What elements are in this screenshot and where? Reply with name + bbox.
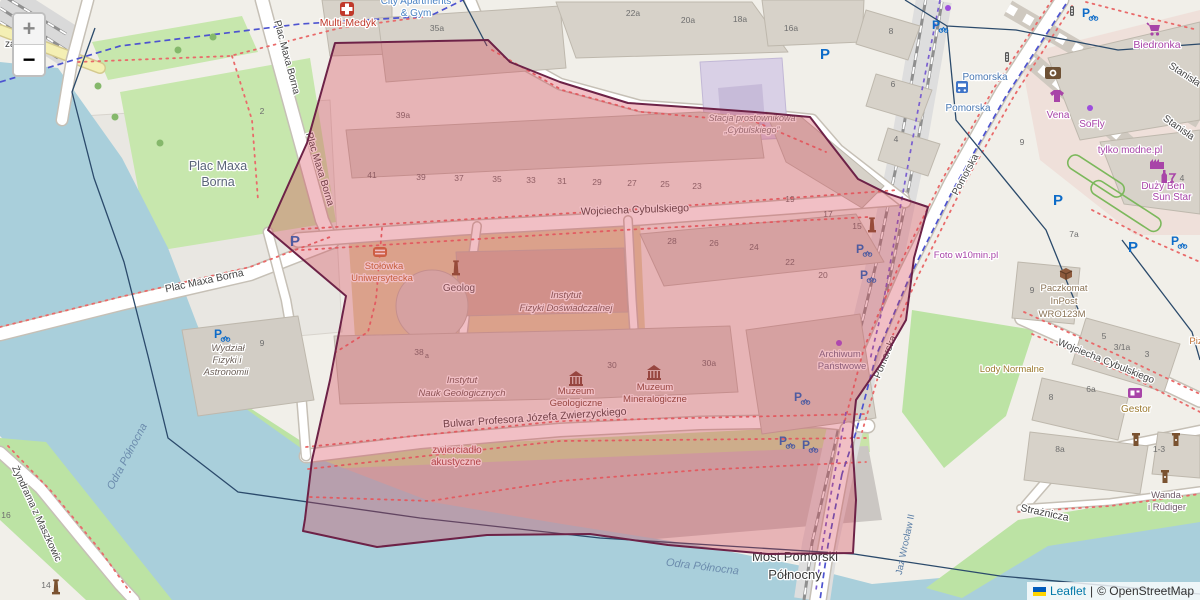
svg-text:Pomorska: Pomorska (962, 72, 1007, 83)
svg-text:16a: 16a (784, 23, 798, 33)
svg-text:Wanda: Wanda (1151, 490, 1181, 501)
svg-text:Astronomii: Astronomii (203, 367, 250, 378)
svg-text:City Apartments: City Apartments (381, 0, 452, 7)
svg-text:9: 9 (1020, 137, 1025, 147)
svg-text:WRO123M: WRO123M (1039, 309, 1086, 320)
svg-text:P: P (1053, 192, 1063, 209)
svg-text:InPost: InPost (1051, 296, 1078, 307)
svg-text:Jaz Wrocław II: Jaz Wrocław II (894, 513, 918, 576)
svg-text:Lody Normalne: Lody Normalne (980, 364, 1044, 375)
svg-text:P: P (820, 46, 830, 63)
svg-text:Sun Star: Sun Star (1153, 192, 1193, 203)
svg-text:4: 4 (894, 134, 899, 144)
svg-text:5: 5 (1102, 331, 1107, 341)
svg-text:Borna: Borna (201, 175, 234, 189)
svg-text:i Rüdiger: i Rüdiger (1148, 502, 1186, 513)
svg-text:1-3: 1-3 (1153, 444, 1166, 454)
map-viewport[interactable]: Wojciecha CybulskiegoBulwar Profesora Jó… (0, 0, 1200, 600)
svg-text:Wydział: Wydział (211, 343, 245, 354)
svg-text:4: 4 (1180, 173, 1185, 183)
svg-text:3/1a: 3/1a (1114, 342, 1131, 352)
svg-text:6a: 6a (1086, 384, 1096, 394)
svg-text:Paczkomat: Paczkomat (1041, 283, 1088, 294)
svg-text:tylko modne.pl: tylko modne.pl (1098, 145, 1162, 156)
svg-text:6: 6 (891, 79, 896, 89)
svg-text:22a: 22a (626, 8, 640, 18)
svg-text:18a: 18a (733, 14, 747, 24)
svg-text:& Gym: & Gym (401, 8, 432, 19)
svg-text:Fizyki i: Fizyki i (212, 355, 242, 366)
svg-text:7a: 7a (1069, 229, 1079, 239)
svg-text:P: P (1128, 239, 1138, 256)
svg-text:8: 8 (889, 26, 894, 36)
attribution-separator: | (1090, 584, 1093, 598)
zoom-in-button[interactable]: + (14, 14, 44, 45)
svg-text:16: 16 (1, 510, 11, 520)
zoom-control: + − (12, 12, 46, 77)
map-canvas: Wojciecha CybulskiegoBulwar Profesora Jó… (0, 0, 1200, 600)
svg-text:9: 9 (1030, 285, 1035, 295)
svg-text:Piz: Piz (1189, 336, 1200, 347)
attribution-bar: Leaflet | © OpenStreetMap (1027, 582, 1200, 600)
svg-text:Foto w10min.pl: Foto w10min.pl (934, 250, 998, 261)
svg-text:Vena: Vena (1047, 110, 1070, 121)
svg-text:Gestor: Gestor (1121, 404, 1152, 415)
svg-text:8a: 8a (1055, 444, 1065, 454)
svg-text:Północny: Północny (768, 567, 822, 582)
svg-text:3: 3 (1145, 349, 1150, 359)
svg-text:8: 8 (1049, 392, 1054, 402)
svg-text:35a: 35a (430, 23, 444, 33)
zoom-out-button[interactable]: − (14, 45, 44, 75)
svg-text:Pomorska: Pomorska (945, 103, 990, 114)
svg-text:Multi-Medyk: Multi-Medyk (320, 17, 377, 29)
leaflet-link[interactable]: Leaflet (1050, 584, 1086, 598)
svg-text:9: 9 (260, 338, 265, 348)
svg-text:Plac Maxa: Plac Maxa (189, 159, 247, 173)
svg-text:Biedronka: Biedronka (1133, 39, 1180, 51)
svg-text:14: 14 (41, 580, 51, 590)
svg-text:SoFly: SoFly (1079, 119, 1105, 130)
ukraine-flag-icon (1033, 587, 1046, 596)
svg-text:2: 2 (260, 106, 265, 116)
svg-text:20a: 20a (681, 15, 695, 25)
osm-link[interactable]: © OpenStreetMap (1097, 584, 1194, 598)
